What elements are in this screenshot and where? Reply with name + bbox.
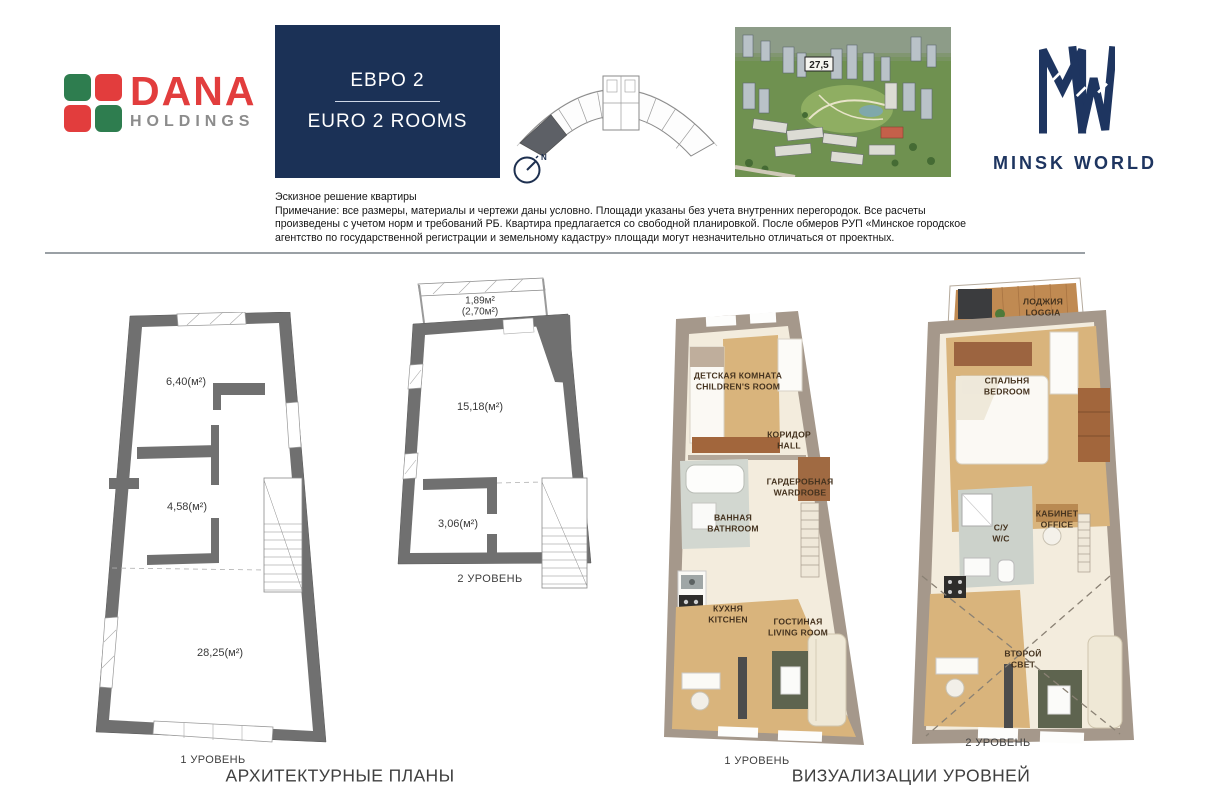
elevator-core [603,76,639,130]
bathroom [680,459,750,549]
room-label-loggia: ЛОДЖИЯ LOGGIA [1023,296,1063,317]
caption-level-visualizations: ВИЗУАЛИЗАЦИИ УРОВНЕЙ [792,766,1030,787]
north-label: N [541,153,547,162]
staircase [542,478,587,588]
disclaimer-body: Примечание: все размеры, материалы и чер… [275,205,972,246]
room-label-childrens-room: ДЕТСКАЯ КОМНАТА CHILDREN'S ROOM [694,370,782,391]
disclaimer-block: Эскизное решение квартиры Примечание: вс… [275,191,972,245]
viz-level-2-label: 2 УРОВЕНЬ [965,737,1030,749]
unit-card-divider [335,101,440,102]
logo-square-green [95,105,122,132]
logo-square-red [95,74,122,101]
dana-holdings-logo: DANA HOLDINGS [64,72,256,132]
plan-level-2-label: 2 УРОВЕНЬ [457,573,522,585]
room-label-kitchen: КУХНЯ KITCHEN [708,603,748,624]
unit-title-en: EURO 2 ROOMS [308,111,468,133]
area-value: 15,18(м²) [457,401,503,413]
room-label-hall: КОРИДОР HALL [767,429,811,450]
area-value: 28,25(м²) [197,647,243,659]
dana-squares-icon [64,74,122,132]
dana-sub-text: HOLDINGS [130,113,256,131]
room-label-wardrobe: ГАРДЕРОБНАЯ WARDROBE [767,476,834,497]
area-value: 4,58(м²) [167,501,207,513]
section-divider [45,252,1085,254]
brochure-page: DANA HOLDINGS ЕВРО 2 EURO 2 ROOMS [0,0,1227,798]
room-label-second-light: ВТОРОЙ СВЕТ [1004,648,1041,669]
plan-level-1: 6,40(м²) 4,58(м²) 28,25(м²) [92,312,328,764]
dana-brand-text: DANA [130,72,256,111]
room-label-bedroom: СПАЛЬНЯ BEDROOM [984,375,1030,396]
logo-square-red [64,105,91,132]
aerial-complex-view: 27,5 [735,27,951,182]
logo-square-green [64,74,91,101]
area-value: 6,40(м²) [166,376,206,388]
staircase [264,478,302,592]
loggia-area-alt: (2,70м²) [462,307,498,318]
plan-level-1-label: 1 УРОВЕНЬ [180,754,245,766]
building-number: 27,5 [809,60,829,71]
minsk-world-wordmark: MINSK WORLD [985,153,1165,174]
school-building [881,127,903,138]
viz-level-1: ДЕТСКАЯ КОМНАТА CHILDREN'S ROOM КОРИДОР … [648,289,873,754]
area-value: 3,06(м²) [438,518,478,530]
room-label-bathroom: ВАННАЯ BATHROOM [707,512,759,533]
unit-type-card: ЕВРО 2 EURO 2 ROOMS [275,25,500,178]
plan-level-2: 1,89м² (2,70м²) 15,18(м²) 3,06(м²) [395,276,607,594]
caption-architectural-plans: АРХИТЕКТУРНЫЕ ПЛАНЫ [226,766,455,787]
north-compass-icon: N [510,150,554,193]
loggia-area: 1,89м² [465,296,495,307]
room-label-office: КАБИНЕТ OFFICE [1036,508,1078,529]
unit-title-ru: ЕВРО 2 [350,70,424,92]
viz-level-2: ЛОДЖИЯ LOGGIA СПАЛЬНЯ BEDROOM С/У W/C КА… [900,276,1140,748]
viz-level-1-label: 1 УРОВЕНЬ [724,755,789,767]
disclaimer-title: Эскизное решение квартиры [275,191,972,205]
mw-monogram-icon [1035,36,1115,142]
room-label-living-room: ГОСТИНАЯ LIVING ROOM [768,616,828,637]
building-number-badge: 27,5 [805,57,833,71]
room-label-wc: С/У W/C [992,522,1009,543]
minsk-world-logo: MINSK WORLD [985,36,1165,174]
